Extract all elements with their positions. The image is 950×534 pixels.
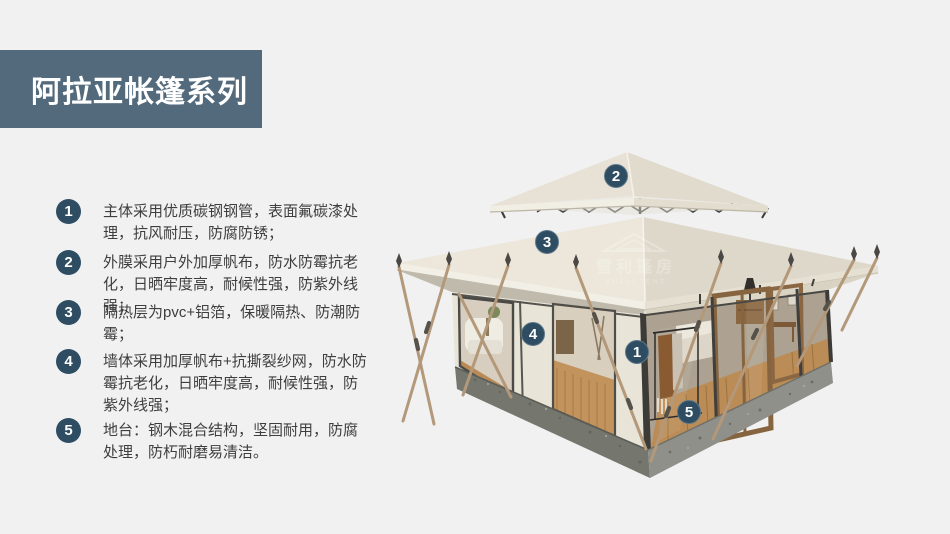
tent-illustration: 雪利篷房 XUELI TENT: [0, 0, 950, 534]
svg-text:3: 3: [543, 234, 551, 251]
watermark-en-text: XUELI TENT: [606, 279, 666, 286]
svg-text:2: 2: [612, 168, 620, 185]
tent-upper-roof: [490, 152, 768, 215]
svg-text:4: 4: [529, 326, 538, 343]
marker-5: 5: [678, 401, 701, 424]
marker-3: 3: [536, 231, 559, 254]
marker-1: 1: [626, 341, 649, 364]
svg-text:1: 1: [633, 344, 641, 361]
svg-text:5: 5: [685, 404, 693, 421]
marker-2: 2: [605, 165, 628, 188]
watermark-cn-text: 雪利篷房: [596, 257, 676, 276]
marker-4: 4: [522, 323, 545, 346]
